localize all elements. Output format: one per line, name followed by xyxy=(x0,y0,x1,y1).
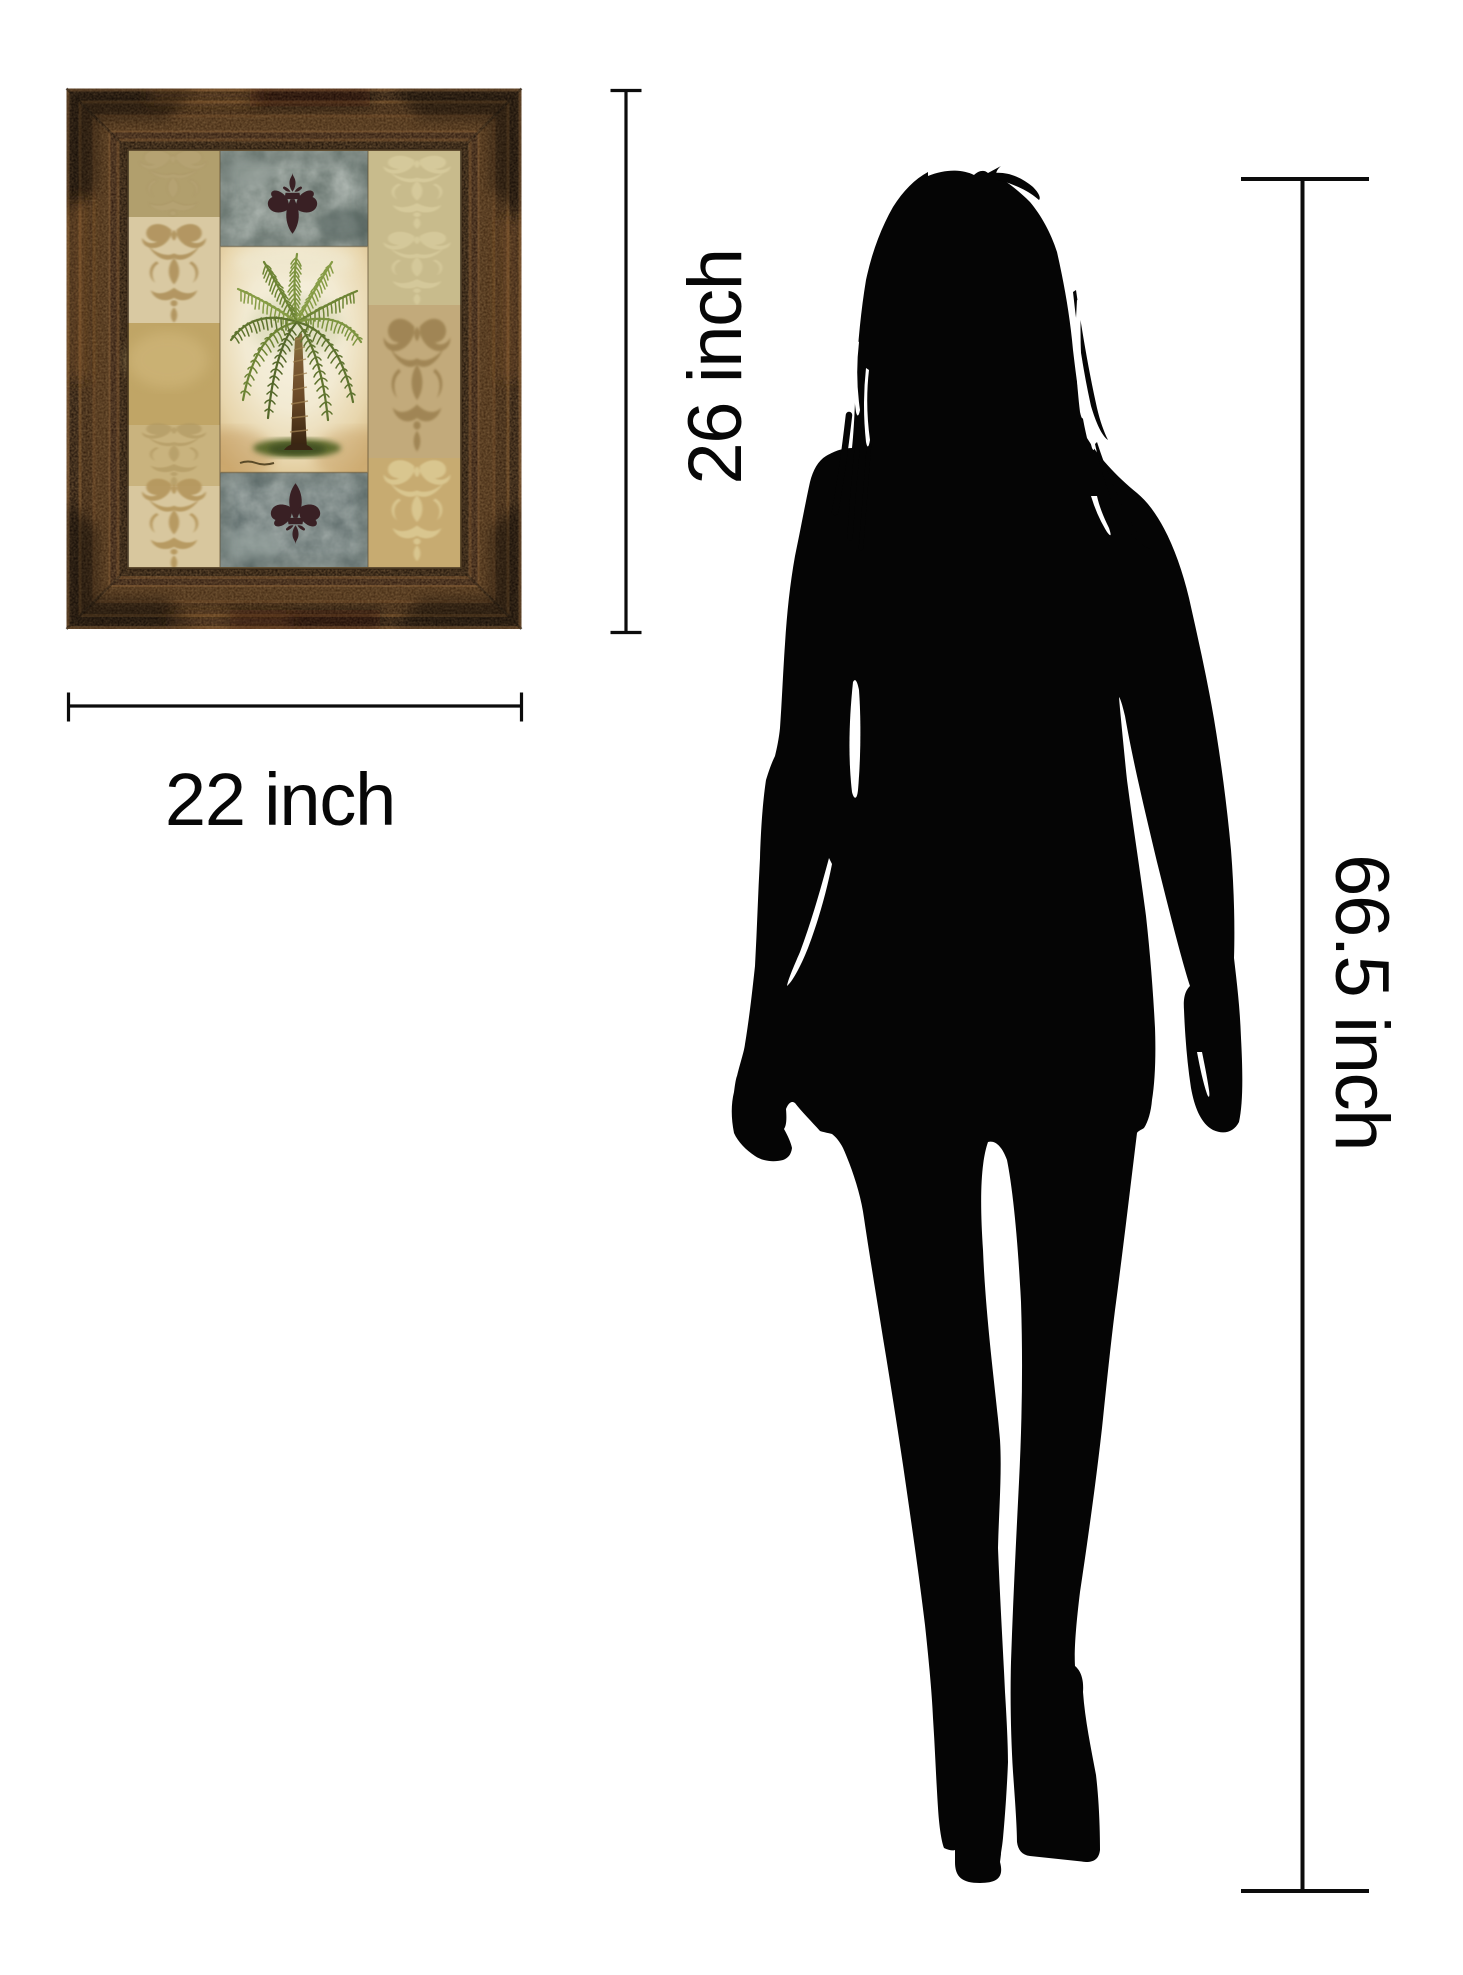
svg-text:66.5 inch: 66.5 inch xyxy=(1319,854,1404,1150)
svg-text:22 inch: 22 inch xyxy=(165,758,395,841)
svg-text:26 inch: 26 inch xyxy=(673,249,758,484)
